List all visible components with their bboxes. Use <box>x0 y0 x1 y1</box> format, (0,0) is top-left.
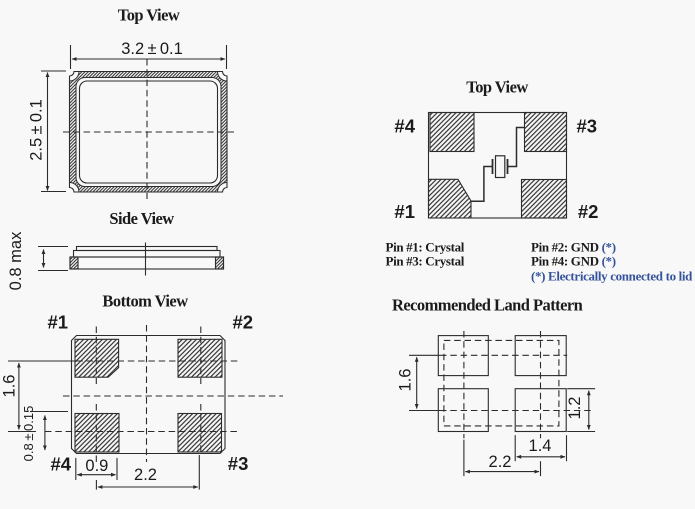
svg-text:0.9: 0.9 <box>85 457 108 475</box>
svg-text:Side View: Side View <box>109 209 174 228</box>
svg-text:Recommended Land Pattern: Recommended Land Pattern <box>392 296 583 315</box>
svg-text:2.2: 2.2 <box>489 453 512 471</box>
svg-text:1.6: 1.6 <box>1 375 19 398</box>
svg-text:2.5 ± 0.1: 2.5 ± 0.1 <box>28 99 46 161</box>
svg-text:Pin #3: Crystal: Pin #3: Crystal <box>386 254 465 269</box>
svg-text:1.2: 1.2 <box>566 397 584 420</box>
svg-text:#2: #2 <box>233 312 254 333</box>
svg-text:3.2 ± 0.1: 3.2 ± 0.1 <box>121 40 183 58</box>
svg-text:Top View: Top View <box>466 78 528 97</box>
svg-text:Pin #4: GND (*): Pin #4: GND (*) <box>531 254 616 269</box>
svg-text:#1: #1 <box>394 201 415 222</box>
svg-text:2.2: 2.2 <box>134 466 157 484</box>
svg-text:Top View: Top View <box>118 6 180 25</box>
svg-text:0.8 max: 0.8 max <box>7 231 25 290</box>
svg-text:Bottom View: Bottom View <box>102 292 188 311</box>
svg-text:#3: #3 <box>577 115 598 136</box>
svg-text:#4: #4 <box>394 115 415 136</box>
svg-text:Pin #1: Crystal: Pin #1: Crystal <box>386 240 465 255</box>
svg-text:1.6: 1.6 <box>397 369 415 392</box>
svg-text:#1: #1 <box>48 312 69 333</box>
svg-text:#4: #4 <box>51 454 72 475</box>
svg-text:#3: #3 <box>228 453 249 474</box>
svg-text:1.4: 1.4 <box>529 437 552 455</box>
svg-text:(*) Electrically connected to: (*) Electrically connected to lid <box>531 269 693 284</box>
svg-text:0.8 ± 0.15: 0.8 ± 0.15 <box>21 406 36 462</box>
svg-text:#2: #2 <box>578 201 599 222</box>
svg-text:Pin #2: GND (*): Pin #2: GND (*) <box>531 240 616 255</box>
